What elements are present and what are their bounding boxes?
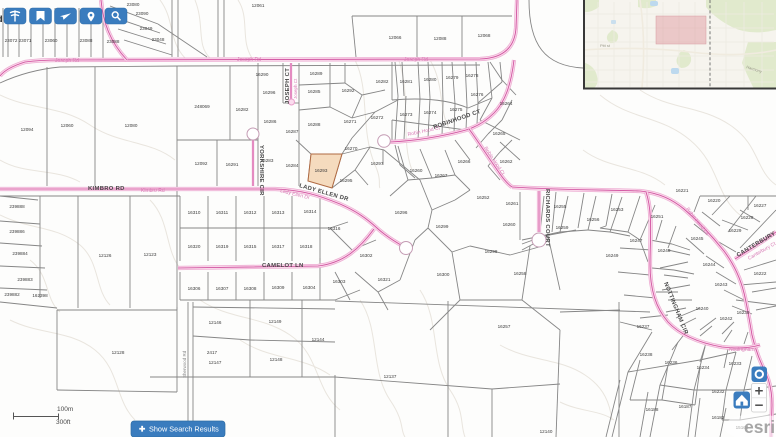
- svg-text:16221: 16221: [676, 188, 689, 193]
- svg-text:16287: 16287: [286, 129, 299, 134]
- svg-text:16307: 16307: [216, 286, 229, 291]
- svg-text:23088: 23088: [107, 39, 120, 44]
- svg-text:16272: 16272: [371, 115, 384, 120]
- svg-text:162398: 162398: [32, 293, 48, 298]
- svg-text:16264: 16264: [500, 101, 513, 106]
- svg-text:d: d: [0, 14, 3, 24]
- svg-text:16260: 16260: [503, 222, 516, 227]
- svg-text:16220: 16220: [708, 198, 721, 203]
- svg-text:23072: 23072: [5, 38, 18, 43]
- svg-text:16291: 16291: [226, 162, 239, 167]
- svg-text:12060: 12060: [61, 123, 74, 128]
- svg-text:16306: 16306: [188, 286, 201, 291]
- svg-text:16188: 16188: [646, 407, 659, 412]
- svg-text:Joseph Rd: Joseph Rd: [404, 57, 428, 63]
- svg-text:16281: 16281: [400, 79, 413, 84]
- svg-text:16271: 16271: [344, 119, 357, 124]
- svg-text:16276: 16276: [471, 92, 484, 97]
- svg-text:16245: 16245: [691, 236, 704, 241]
- svg-text:16310: 16310: [188, 210, 201, 215]
- svg-text:16244: 16244: [703, 262, 716, 267]
- svg-text:239886: 239886: [9, 229, 25, 234]
- svg-text:16182: 16182: [712, 415, 725, 420]
- svg-text:12094: 12094: [21, 127, 34, 132]
- svg-text:16315: 16315: [244, 244, 257, 249]
- svg-text:12080: 12080: [125, 123, 138, 128]
- svg-text:16240: 16240: [696, 306, 709, 311]
- svg-text:YORKSHIRE CIR: YORKSHIRE CIR: [258, 145, 264, 196]
- svg-text:16303: 16303: [333, 279, 346, 284]
- svg-text:23088: 23088: [80, 38, 93, 43]
- svg-text:16261: 16261: [506, 201, 519, 206]
- svg-text:248069: 248069: [194, 104, 210, 109]
- svg-text:16274: 16274: [424, 110, 437, 115]
- svg-text:12088: 12088: [434, 36, 447, 41]
- svg-text:16300: 16300: [437, 272, 450, 277]
- svg-text:16314: 16314: [304, 209, 317, 214]
- svg-text:16280: 16280: [424, 77, 437, 82]
- svg-text:16265: 16265: [493, 131, 506, 136]
- svg-text:16236: 16236: [665, 360, 678, 365]
- svg-text:16255: 16255: [554, 204, 567, 209]
- svg-text:16313: 16313: [272, 210, 285, 215]
- svg-text:16296: 16296: [263, 90, 276, 95]
- svg-text:16312: 16312: [244, 210, 257, 215]
- svg-text:16293: 16293: [315, 168, 328, 173]
- svg-text:✚: ✚: [139, 425, 146, 434]
- svg-text:16257: 16257: [498, 324, 511, 329]
- svg-text:16266: 16266: [458, 159, 471, 164]
- svg-text:12147: 12147: [209, 360, 222, 365]
- svg-text:12149: 12149: [269, 319, 282, 324]
- svg-text:Show Search Results: Show Search Results: [149, 425, 219, 434]
- svg-text:16270: 16270: [345, 146, 358, 151]
- svg-text:16295: 16295: [340, 178, 353, 183]
- svg-text:100m: 100m: [57, 406, 73, 413]
- svg-text:12140: 12140: [540, 429, 553, 434]
- svg-text:23090: 23090: [136, 11, 149, 16]
- svg-text:16242: 16242: [720, 316, 733, 321]
- svg-text:JOSEPH CT: JOSEPH CT: [285, 68, 291, 104]
- svg-text:16237: 16237: [637, 324, 650, 329]
- svg-text:16239: 16239: [737, 310, 750, 315]
- svg-text:16247: 16247: [630, 238, 643, 243]
- svg-text:Kimbro Rd: Kimbro Rd: [141, 188, 165, 194]
- svg-text:16284: 16284: [286, 163, 299, 168]
- svg-text:16267: 16267: [435, 173, 448, 178]
- svg-text:16285: 16285: [308, 89, 321, 94]
- svg-text:16308: 16308: [244, 286, 257, 291]
- svg-text:16289: 16289: [310, 71, 323, 76]
- svg-text:239888: 239888: [9, 204, 25, 209]
- svg-text:16238: 16238: [640, 352, 653, 357]
- svg-text:12144: 12144: [312, 337, 325, 342]
- svg-text:12123: 12123: [144, 252, 157, 257]
- svg-text:12137: 12137: [384, 374, 397, 379]
- svg-text:16290: 16290: [256, 72, 269, 77]
- svg-text:16311: 16311: [216, 210, 229, 215]
- svg-text:16321: 16321: [378, 277, 391, 282]
- svg-text:23060: 23060: [45, 38, 58, 43]
- svg-text:16229: 16229: [729, 228, 742, 233]
- svg-text:16252: 16252: [477, 195, 490, 200]
- svg-text:KIMBRO RD: KIMBRO RD: [88, 186, 125, 192]
- svg-text:16248: 16248: [658, 248, 671, 253]
- svg-text:23080: 23080: [127, 2, 140, 7]
- svg-text:RICHARDS COURT: RICHARDS COURT: [544, 189, 550, 247]
- svg-text:16309: 16309: [272, 285, 285, 290]
- svg-text:239882: 239882: [4, 292, 20, 297]
- svg-text:16320: 16320: [188, 244, 201, 249]
- svg-text:16292: 16292: [342, 88, 355, 93]
- svg-text:16279: 16279: [446, 75, 459, 80]
- svg-text:12068: 12068: [478, 33, 491, 38]
- svg-text:16296: 16296: [395, 210, 408, 215]
- svg-text:16319: 16319: [216, 244, 229, 249]
- svg-text:239884: 239884: [12, 251, 28, 256]
- svg-text:16259: 16259: [556, 225, 569, 230]
- svg-text:12092: 12092: [195, 161, 208, 166]
- svg-text:16282: 16282: [236, 107, 249, 112]
- svg-text:12146: 12146: [209, 320, 222, 325]
- svg-text:16233: 16233: [729, 361, 742, 366]
- svg-text:16304: 16304: [303, 285, 316, 290]
- svg-text:16302: 16302: [360, 253, 373, 258]
- svg-text:300ft: 300ft: [56, 419, 71, 426]
- svg-text:16317: 16317: [272, 244, 285, 249]
- svg-text:16253: 16253: [611, 207, 624, 212]
- svg-text:Nottingham: Nottingham: [729, 347, 755, 353]
- svg-text:16316: 16316: [328, 226, 341, 231]
- svg-text:12066: 12066: [389, 35, 402, 40]
- svg-text:esri: esri: [744, 417, 775, 437]
- svg-text:23049: 23049: [140, 26, 153, 31]
- svg-text:16227: 16227: [754, 203, 767, 208]
- svg-text:16298: 16298: [485, 249, 498, 254]
- svg-text:16251: 16251: [651, 214, 664, 219]
- svg-text:16222: 16222: [754, 271, 767, 276]
- svg-text:Pitt st: Pitt st: [600, 43, 611, 48]
- svg-text:16318: 16318: [300, 244, 313, 249]
- svg-text:Sherwood Rd: Sherwood Rd: [182, 350, 187, 378]
- svg-text:16260: 16260: [410, 168, 423, 173]
- svg-text:16243: 16243: [715, 282, 728, 287]
- svg-text:16262: 16262: [500, 159, 513, 164]
- svg-text:16232: 16232: [712, 389, 725, 394]
- svg-text:12128: 12128: [112, 350, 125, 355]
- svg-text:16187: 16187: [679, 404, 692, 409]
- svg-text:23071: 23071: [19, 38, 32, 43]
- svg-text:16258: 16258: [514, 271, 527, 276]
- svg-text:239883: 239883: [17, 277, 33, 282]
- svg-text:Joseph Rd: Joseph Rd: [55, 58, 79, 64]
- svg-text:16288: 16288: [308, 122, 321, 127]
- svg-text:12126: 12126: [99, 253, 112, 258]
- svg-text:16299: 16299: [436, 224, 449, 229]
- svg-text:16256: 16256: [587, 217, 600, 222]
- svg-text:23048: 23048: [152, 37, 165, 42]
- svg-text:16234: 16234: [697, 365, 710, 370]
- svg-text:16278: 16278: [466, 73, 479, 78]
- svg-text:16286: 16286: [264, 119, 277, 124]
- svg-text:16282: 16282: [376, 79, 389, 84]
- svg-text:12148: 12148: [270, 357, 283, 362]
- svg-text:16273: 16273: [400, 112, 413, 117]
- svg-text:16228: 16228: [741, 215, 754, 220]
- svg-text:12061: 12061: [252, 3, 265, 8]
- svg-text:16249: 16249: [606, 253, 619, 258]
- svg-text:16275: 16275: [450, 107, 463, 112]
- svg-text:Joseph Rd: Joseph Rd: [237, 57, 261, 63]
- svg-text:Joseph Ct: Joseph Ct: [293, 78, 298, 99]
- svg-text:16297: 16297: [371, 161, 384, 166]
- svg-text:CAMELOT LN: CAMELOT LN: [262, 263, 304, 269]
- svg-text:2417: 2417: [207, 350, 218, 355]
